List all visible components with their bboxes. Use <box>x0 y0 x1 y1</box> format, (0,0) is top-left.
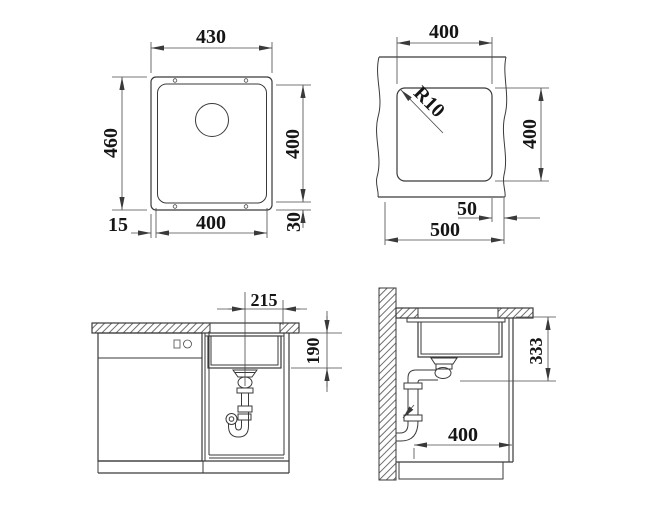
sink-bowl-side <box>418 322 502 357</box>
dim-label-cutout-width: 400 <box>429 21 459 43</box>
worktop-hatch <box>498 308 533 318</box>
sink-outer-outline <box>151 77 272 210</box>
dim-label-clear-depth: 400 <box>448 424 478 446</box>
dimension-center-to-edge: 215 <box>217 290 307 325</box>
dimension-edge-distance: 50 <box>457 198 540 244</box>
sink-bowl-outline <box>158 84 267 203</box>
control-switch <box>174 340 180 348</box>
dim-label-install-height: 333 <box>526 338 546 365</box>
worktop-break-line-left <box>376 57 380 197</box>
worktop-hatch <box>396 308 418 318</box>
siphon-front <box>226 370 257 437</box>
corner-radius-callout: R10 <box>401 82 449 133</box>
dim-label-flange-side: 15 <box>108 214 128 236</box>
dim-label-cutout-depth: 400 <box>519 119 541 149</box>
mounting-hole <box>173 205 177 209</box>
dimension-overall-depth: 460 <box>100 77 147 210</box>
cabinet-front-view: 215 190 <box>92 290 342 473</box>
cabinet-side-view: 333 400 <box>379 288 556 480</box>
sink-top-view: 430 460 400 30 15 <box>100 26 311 238</box>
dim-label-edge-distance: 50 <box>457 198 477 220</box>
dim-label-min-cabinet-width: 500 <box>430 219 460 241</box>
dimension-bowl-width: 400 <box>156 212 267 234</box>
dimension-install-height: 333 <box>460 317 556 381</box>
dim-label-overall-depth: 460 <box>100 128 122 158</box>
dim-label-bowl-height: 190 <box>303 338 323 365</box>
control-knob <box>184 340 192 348</box>
drain-hole <box>196 104 229 137</box>
worktop-cutout-view: 400 R10 400 50 500 <box>376 21 549 245</box>
dimension-cutout-width: 400 <box>397 21 492 84</box>
sink-flange-side <box>407 318 505 322</box>
mounting-hole <box>244 205 248 209</box>
dimension-bowl-depth: 400 <box>276 85 311 210</box>
worktop-hatch <box>92 323 210 333</box>
technical-drawing-sheet: 430 460 400 30 15 <box>0 0 648 530</box>
dim-label-bowl-width: 400 <box>196 212 226 234</box>
dimension-min-cabinet-width: 500 <box>385 202 504 245</box>
worktop-break-line-right <box>503 57 506 197</box>
dimension-overall-width: 430 <box>151 26 272 73</box>
dim-label-bowl-depth: 400 <box>282 129 304 159</box>
dim-label-center-to-edge: 215 <box>251 290 278 310</box>
dimension-flange-side: 15 <box>108 208 267 238</box>
cabinet-plinth <box>399 462 503 479</box>
mounting-hole <box>244 79 248 83</box>
drawing-canvas: 430 460 400 30 15 <box>0 0 648 530</box>
mounting-hole <box>173 79 177 83</box>
dimension-clear-depth: 400 <box>414 424 512 459</box>
left-cabinet <box>98 333 202 461</box>
dim-label-overall-width: 430 <box>196 26 226 48</box>
sink-bowl-front <box>208 336 281 368</box>
dimension-cutout-depth: 400 <box>495 88 549 181</box>
dim-label-flange-back: 30 <box>283 212 305 232</box>
dimension-flange-back: 30 <box>283 210 305 232</box>
wall-hatch <box>379 288 396 480</box>
